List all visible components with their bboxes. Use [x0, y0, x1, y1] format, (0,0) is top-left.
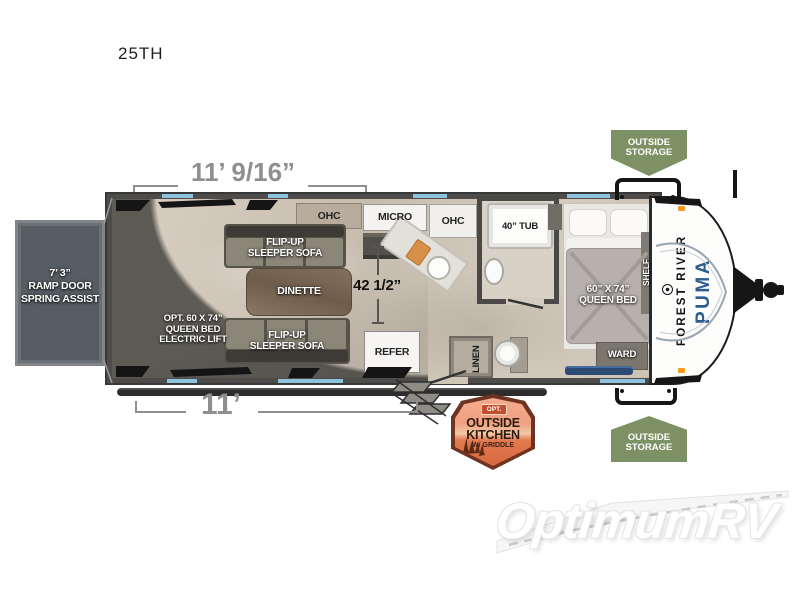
bottom-dim-line-left [135, 411, 186, 413]
ramp-door-label: 7’ 3” RAMP DOOR SPRING ASSIST [18, 267, 102, 306]
toilet [494, 340, 521, 367]
watermark-logo: OptimumRV [493, 492, 799, 550]
bracket-screw [620, 389, 624, 393]
outside-storage-badge-bottom: OUTSIDE STORAGE [611, 416, 687, 462]
pillow [569, 209, 607, 236]
top-dim-line-left [133, 185, 178, 187]
outside-kitchen-line3: W/ GRIDDLE [455, 442, 531, 449]
outside-kitchen-badge: OPT. OUTSIDE KITCHEN W/ GRIDDLE [451, 394, 535, 470]
galley-dim-line-upper [377, 247, 379, 275]
galley-dim-cap-bottom [372, 322, 384, 324]
outside-kitchen-line2: KITCHEN [455, 428, 531, 442]
brand-model: PUMA [693, 230, 715, 352]
hitch-icon [733, 170, 784, 314]
window-accent [167, 379, 197, 383]
window-accent [268, 194, 288, 198]
bracket-screw [671, 195, 675, 199]
outside-kitchen-opt-chip: OPT. [481, 404, 507, 415]
ward-label: WARD [596, 350, 648, 361]
floorplan-title: 25TH [118, 44, 164, 64]
sofa-bottom-label: FLIP-UP SLEEPER SOFA [222, 330, 352, 352]
sofa-top-label: FLIP-UP SLEEPER SOFA [222, 237, 348, 259]
window-accent [567, 194, 610, 198]
dinette-label: DINETTE [246, 286, 352, 298]
window-accent [600, 379, 645, 383]
entry-steps [390, 380, 450, 424]
top-width-dimension: 11’ 9/16” [178, 157, 308, 188]
floorplan-image: 25TH 11’ 9/16” [0, 0, 800, 600]
bathroom-door-gap [506, 297, 544, 305]
outside-storage-badge-bottom-label: OUTSIDE STORAGE [611, 416, 687, 452]
galley-clearance-dimension: 42 1/2” [346, 277, 408, 294]
window-accent [162, 194, 193, 198]
shelf-label: SHELF [642, 240, 655, 306]
tub-label: 40” TUB [486, 221, 554, 232]
bottom-dim-tick-right [416, 401, 418, 413]
linen-label: LINEN [471, 339, 484, 379]
bathroom-sink [484, 258, 504, 285]
outside-storage-badge-top-label: OUTSIDE STORAGE [611, 130, 687, 157]
galley-dim-cap-top [372, 246, 384, 248]
ohc-kitchen-label: OHC [429, 204, 477, 238]
ohc-left-label: OHC [296, 203, 362, 229]
micro-label: MICRO [363, 204, 427, 231]
galley-dim-line-lower [377, 299, 379, 323]
forest-river-logo-icon [662, 284, 673, 295]
window-accent [278, 379, 343, 383]
window-accent [413, 194, 447, 198]
awning-bar [117, 388, 547, 396]
refer-label: REFER [364, 331, 420, 373]
outside-storage-badge-top: OUTSIDE STORAGE [611, 130, 687, 176]
brand-manufacturer: FOREST RIVER [676, 206, 691, 374]
bottom-dim-tick-left [135, 401, 137, 413]
entry-door-gap [428, 377, 468, 384]
top-dim-line-right [308, 185, 367, 187]
bottom-width-dimension: 11’ [186, 388, 256, 422]
bedroom-step-mat [565, 366, 633, 375]
outside-kitchen-badge-inner: OPT. OUTSIDE KITCHEN W/ GRIDDLE [455, 398, 531, 466]
bracket-screw [620, 195, 624, 199]
bracket-screw [667, 389, 671, 393]
bottom-dim-line-right [258, 411, 418, 413]
